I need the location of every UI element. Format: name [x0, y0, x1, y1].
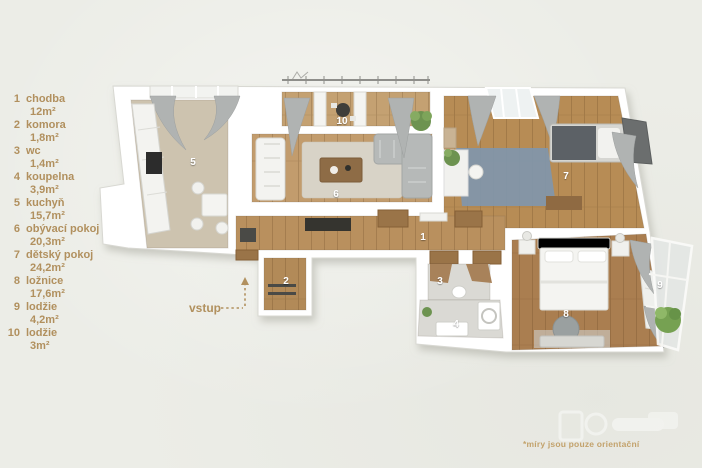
chair — [192, 182, 204, 194]
room-label-4: 4 — [453, 319, 459, 330]
balcony-railing — [282, 72, 430, 84]
pantry-shelf — [268, 284, 296, 287]
room-kids — [444, 88, 652, 228]
coffee-table — [320, 158, 362, 182]
floorplan-screenshot: 1chodba 12m² 2komora 1,8m² 3wc 1,4m² 4ko… — [0, 0, 702, 468]
room-bedroom — [512, 232, 664, 351]
chair — [469, 165, 483, 179]
bed-headboard — [538, 238, 610, 249]
balcony-chair — [350, 116, 356, 121]
door — [473, 251, 501, 264]
room-label-1: 1 — [420, 232, 426, 243]
entrance-door — [236, 250, 258, 260]
tv-sideboard — [305, 218, 351, 231]
floorplan-3d-render: 1 2 3 4 5 6 7 8 9 10 vstup — [0, 0, 702, 468]
vase — [330, 166, 338, 174]
room-label-6: 6 — [333, 189, 339, 200]
lamp — [523, 232, 532, 241]
entrance-label: vstup — [189, 301, 221, 315]
plant-icon — [422, 307, 432, 317]
plant-icon — [655, 307, 681, 333]
chair — [216, 222, 228, 234]
balcony-table — [336, 103, 350, 117]
door — [430, 251, 458, 264]
sofa — [256, 138, 285, 200]
vase — [345, 165, 351, 171]
room-label-3: 3 — [437, 276, 443, 287]
console — [240, 228, 256, 242]
room-label-2: 2 — [283, 276, 289, 287]
room-label-5: 5 — [190, 157, 196, 168]
shelf — [444, 128, 456, 148]
entrance-annotation: vstup — [189, 277, 249, 315]
vanity — [436, 322, 468, 336]
room-label-7: 7 — [563, 171, 569, 182]
pantry-shelf — [268, 292, 296, 295]
entrance-arrow — [221, 284, 245, 308]
nightstand — [612, 241, 629, 256]
lamp — [616, 234, 625, 243]
shelf — [420, 213, 447, 221]
room-bathroom — [418, 300, 503, 338]
room-label-8: 8 — [563, 309, 569, 320]
balcony-chair — [331, 103, 337, 108]
small-table — [546, 196, 582, 210]
bench — [540, 336, 604, 347]
room-label-10: 10 — [336, 116, 348, 127]
pillow — [578, 251, 606, 262]
pillow — [545, 251, 573, 262]
door — [378, 210, 408, 227]
entrance-arrowhead — [241, 277, 249, 285]
glass-balcony — [652, 238, 692, 350]
watermark-logo — [560, 412, 678, 440]
door — [455, 211, 482, 227]
room-kitchen — [131, 86, 240, 248]
chair — [191, 218, 203, 230]
stove-appliance — [146, 152, 162, 174]
disclaimer-text: *míry jsou pouze orientační — [523, 439, 683, 449]
nightstand — [519, 240, 535, 254]
room-label-9: 9 — [657, 280, 663, 291]
toilet — [452, 286, 466, 298]
dining-table — [202, 194, 227, 216]
